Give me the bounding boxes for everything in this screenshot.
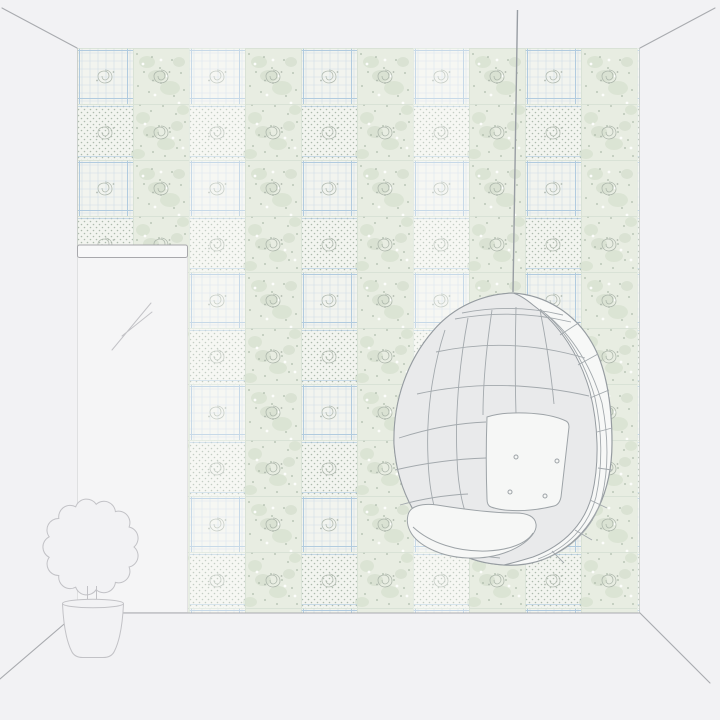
- room-scene: [0, 0, 720, 720]
- plant-pot-body: [63, 604, 124, 658]
- mirror-top-frame: [78, 245, 188, 258]
- plant-pot-rim: [63, 599, 124, 608]
- chair-back-cushion: [486, 413, 569, 511]
